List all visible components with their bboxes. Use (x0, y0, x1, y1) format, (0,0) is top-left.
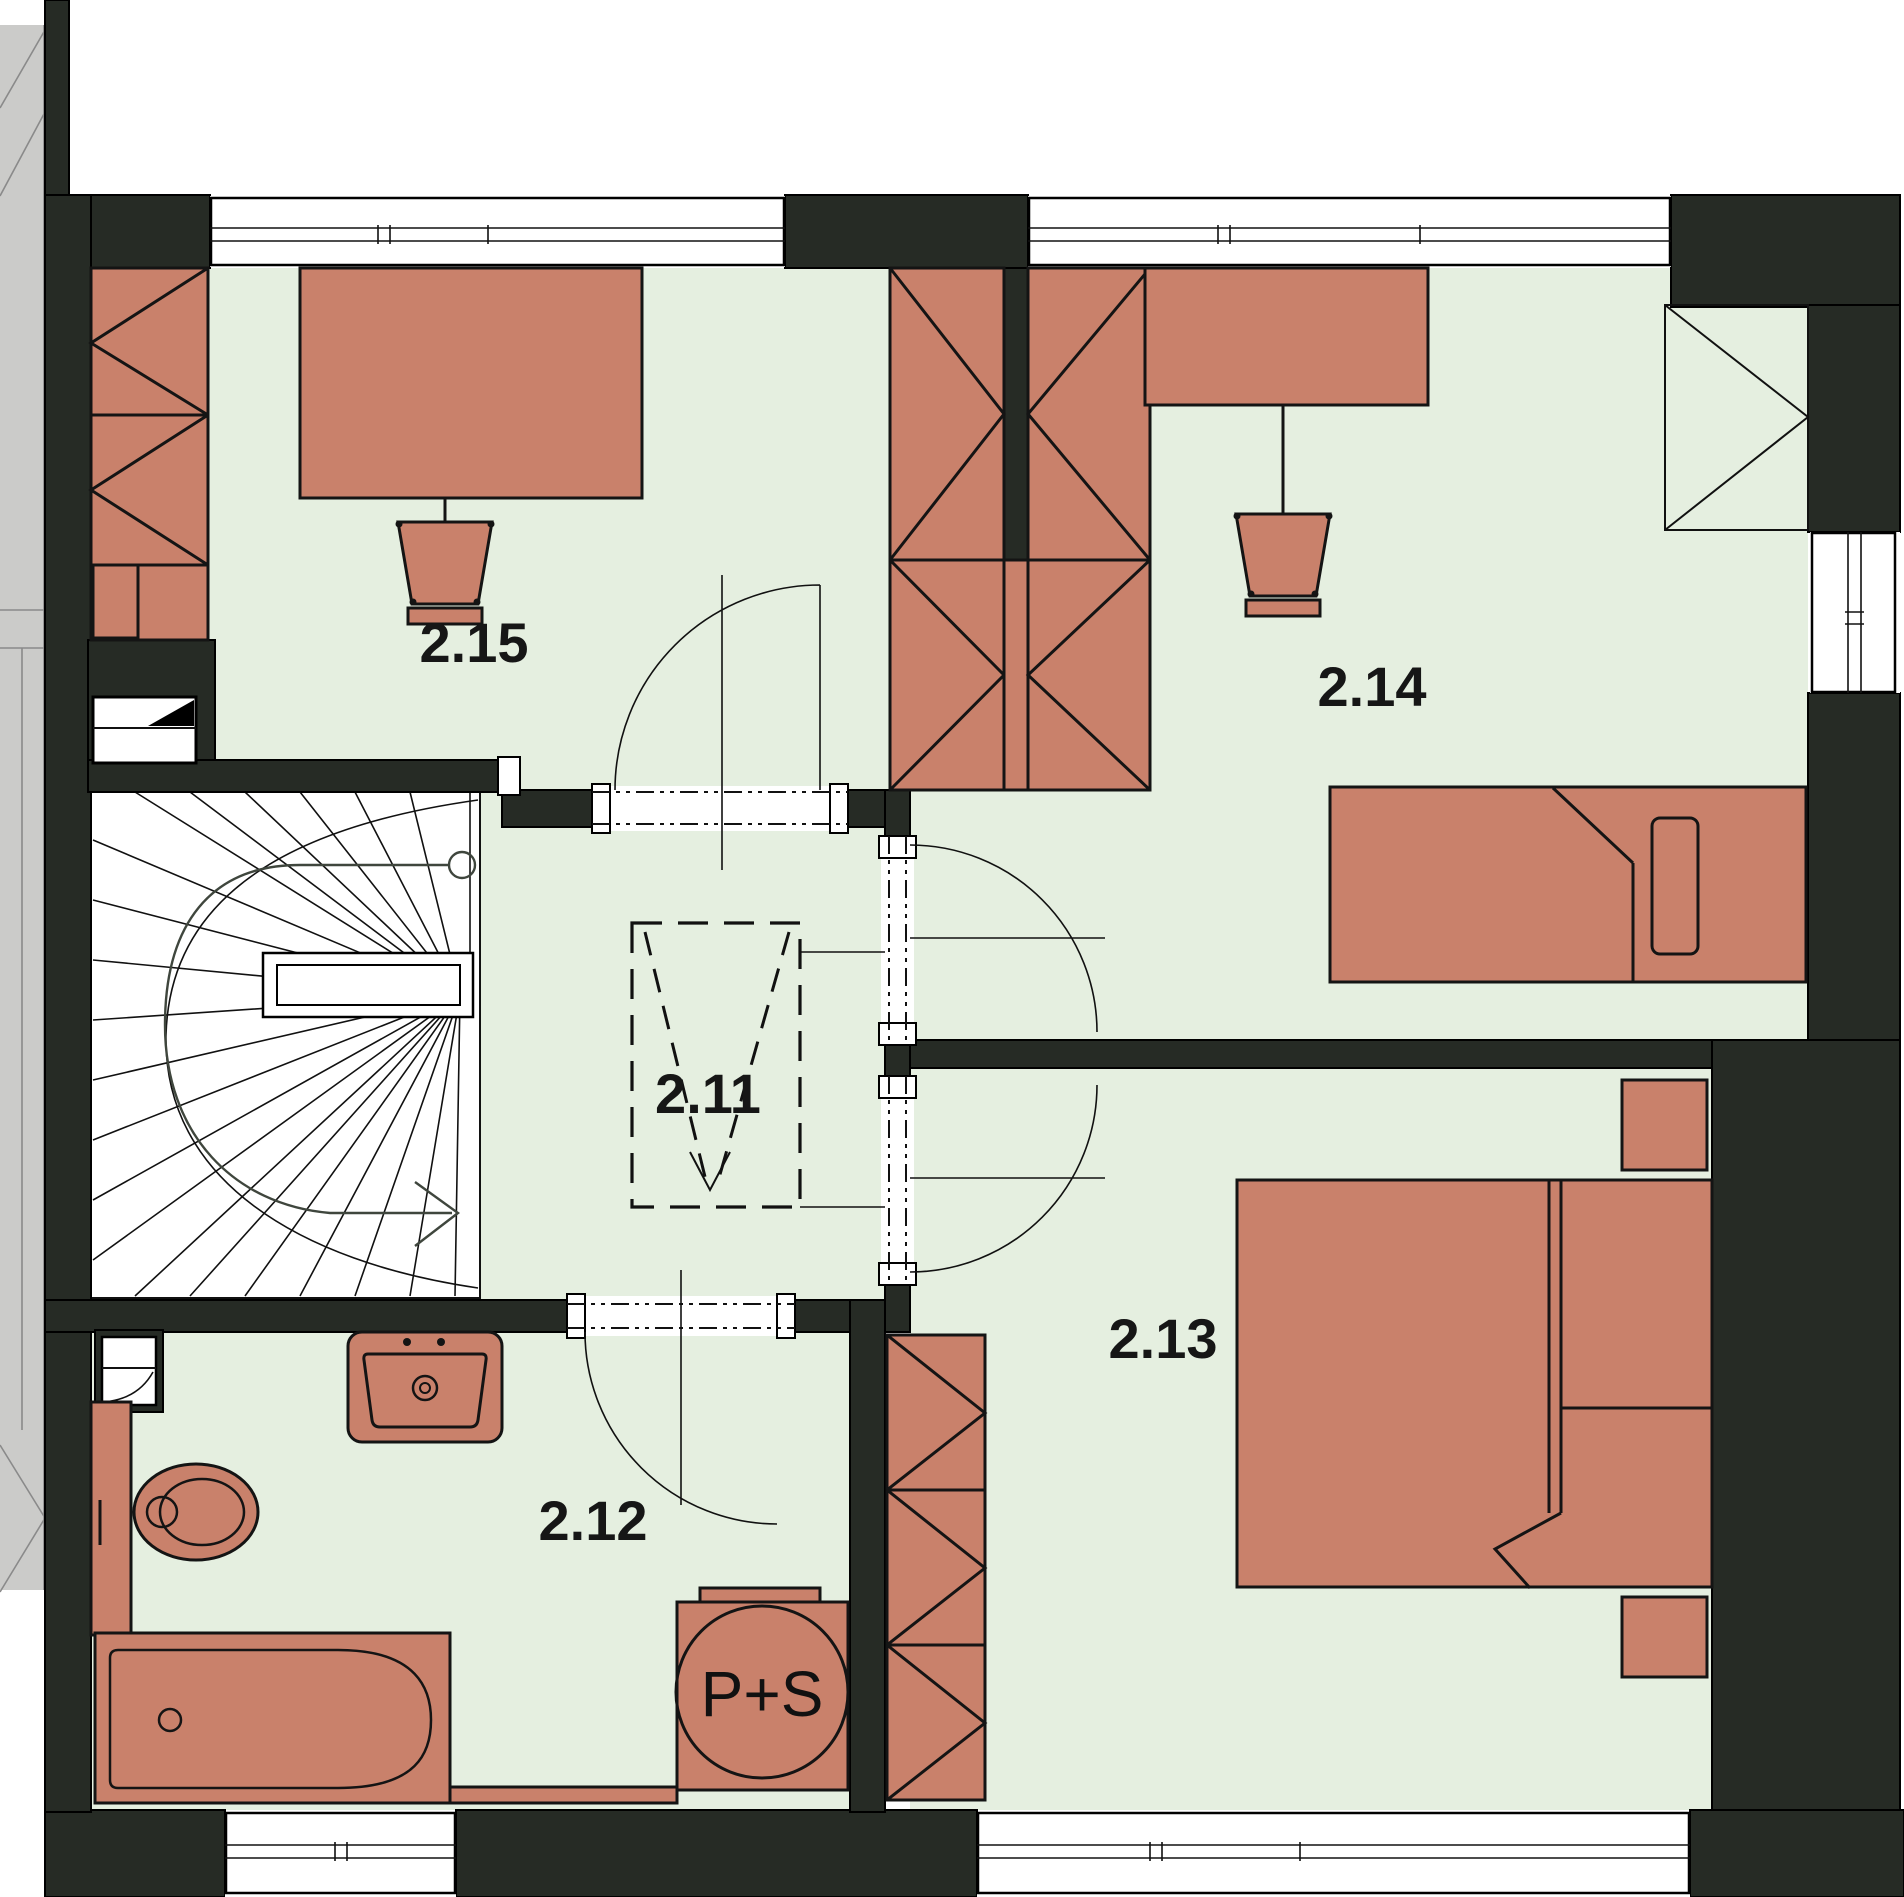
bath-plinth (450, 1787, 677, 1803)
window-bottom-bathroom (225, 1812, 456, 1897)
washer-dryer: P+S (676, 1588, 848, 1790)
floor-hall-2-11 (478, 790, 910, 1332)
wall-niche-upper (93, 697, 196, 763)
label-hall-2-11: 2.11 (655, 1062, 761, 1125)
label-room-2-12: 2.12 (539, 1489, 648, 1552)
floor-plan-page: P+S 2.15 2.14 2.11 2.13 2.12 (0, 0, 1904, 1897)
window-top-left (210, 196, 785, 267)
bed-single-2-14 (1330, 787, 1806, 982)
washer-dryer-label: P+S (701, 1658, 824, 1730)
label-room-2-14: 2.14 (1318, 655, 1427, 718)
wardrobe-2-14-left (1028, 268, 1150, 790)
label-room-2-13: 2.13 (1109, 1307, 1218, 1370)
desk-2-14 (1145, 268, 1428, 405)
nightstand-2-13-upper (1622, 1080, 1707, 1170)
door-opening-2-14 (879, 836, 916, 1045)
wardrobe-2-13 (887, 1335, 985, 1800)
floor-plan-drawing: P+S 2.15 2.14 2.11 2.13 2.12 (0, 0, 1904, 1897)
wardrobe-2-15-left (91, 268, 208, 640)
wall-niche-bathroom (102, 1337, 156, 1405)
window-bottom-bedroom (977, 1812, 1690, 1897)
door-opening-2-15 (592, 784, 848, 833)
neighbor-building (0, 25, 45, 1592)
label-room-2-15: 2.15 (420, 611, 529, 674)
nightstand-2-13-lower (1622, 1597, 1707, 1677)
desk-2-15 (300, 268, 642, 498)
door-opening-2-13 (879, 1076, 916, 1285)
stair-handrail (263, 953, 473, 1017)
bed-double-2-13 (1237, 1180, 1712, 1588)
staircase (91, 790, 480, 1298)
window-right (1810, 532, 1900, 693)
window-top-right (1028, 196, 1671, 267)
wall-end-cap (498, 757, 520, 795)
sink (348, 1332, 502, 1442)
